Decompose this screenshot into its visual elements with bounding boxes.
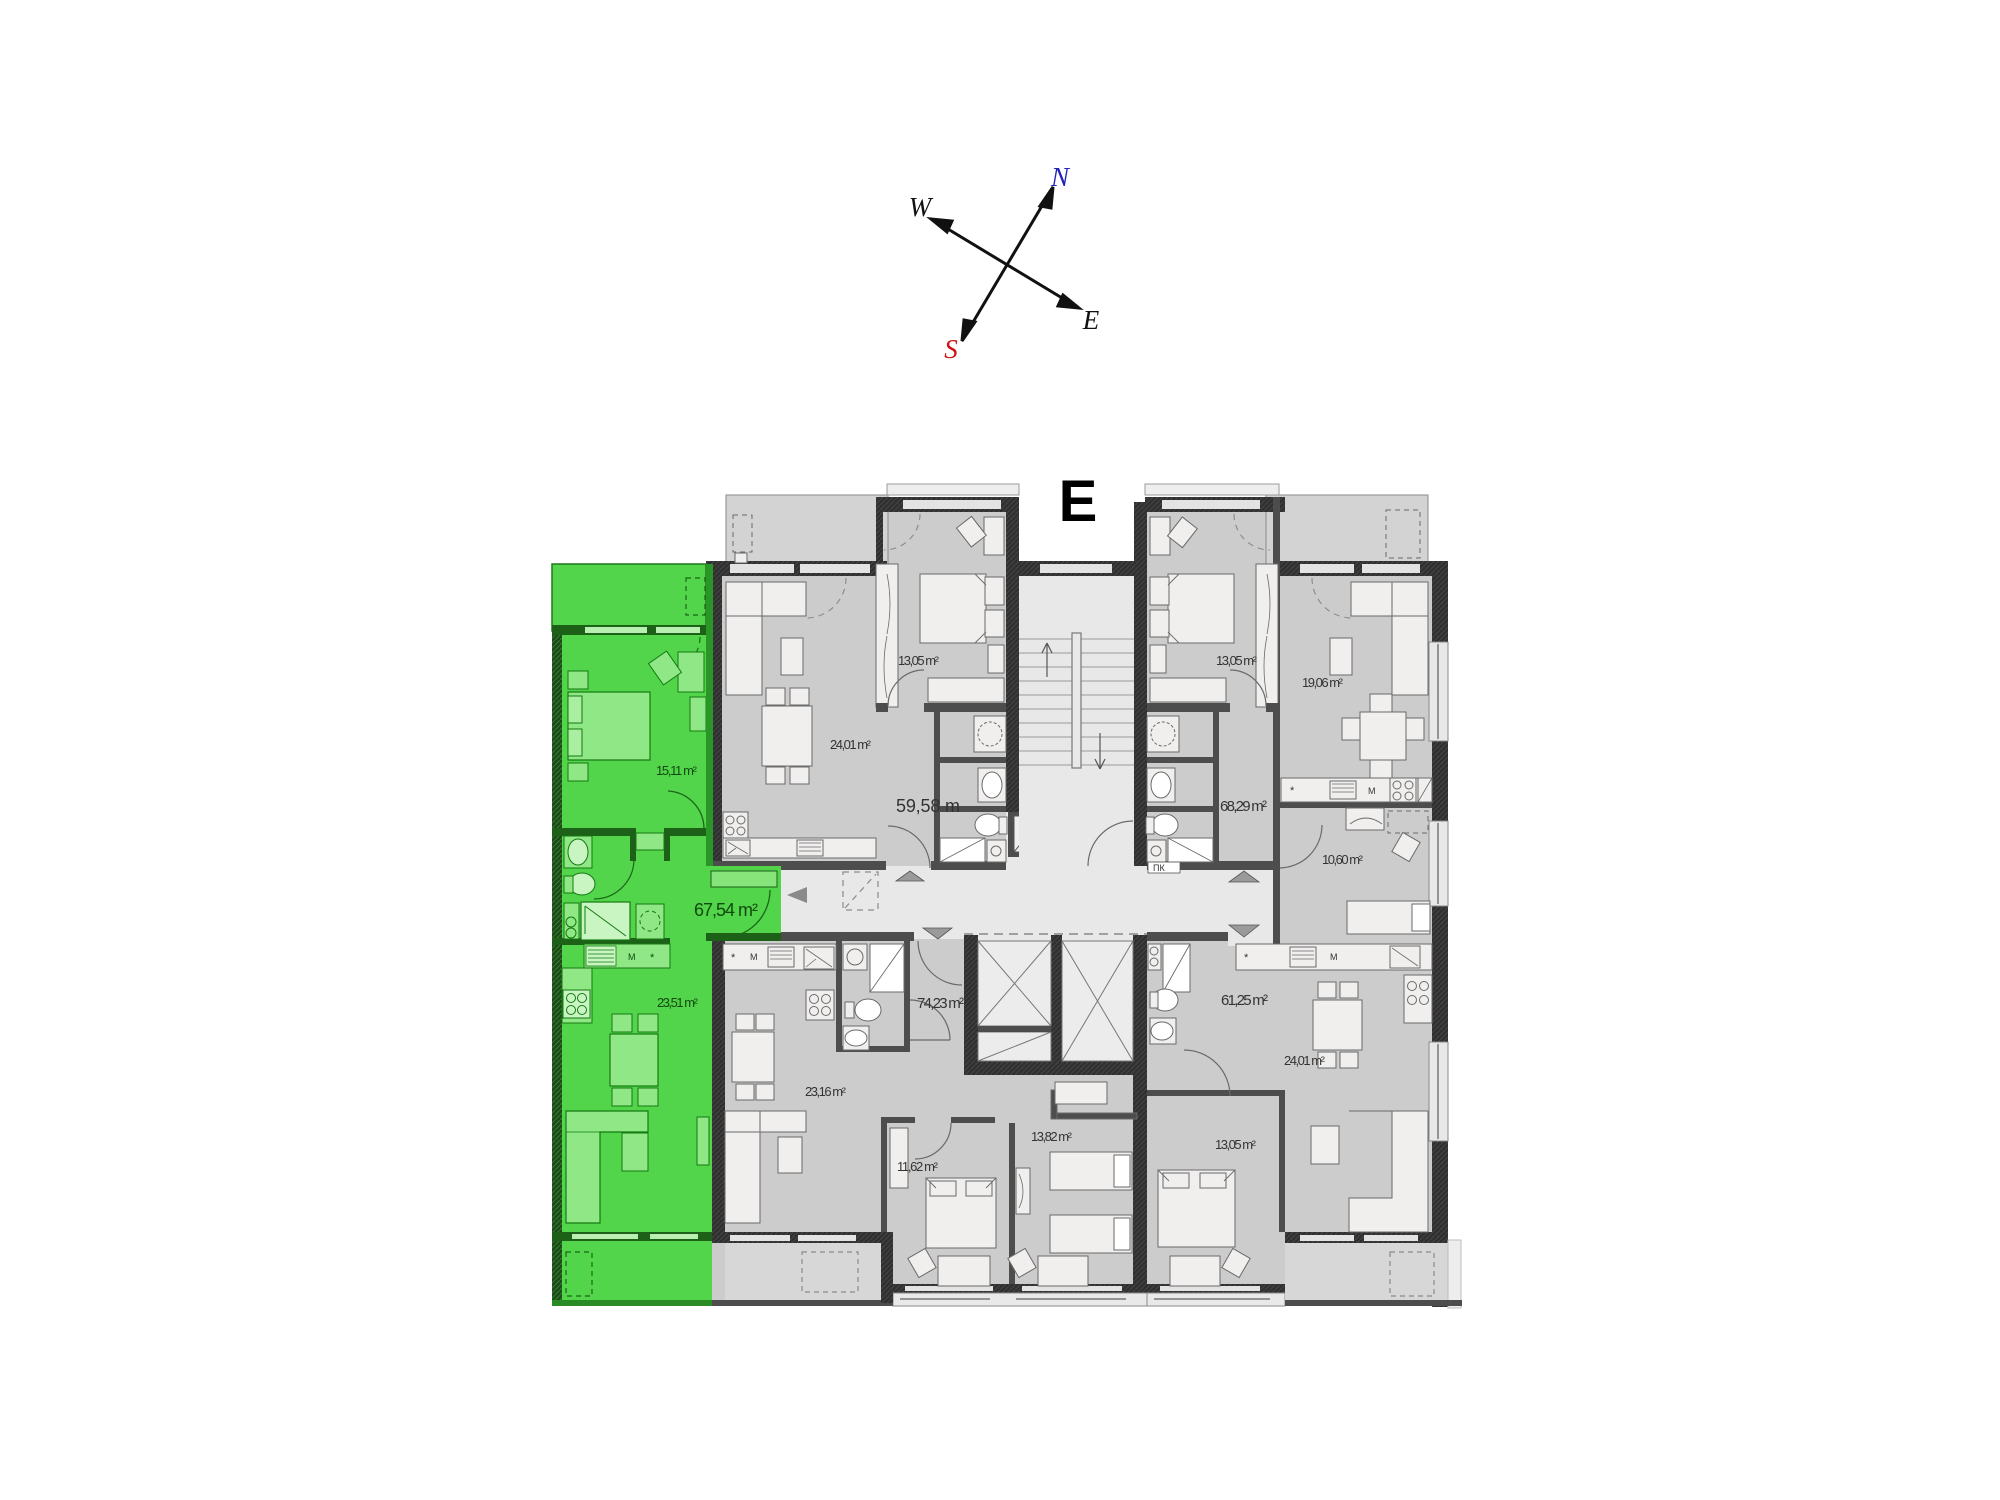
svg-text:*: * bbox=[731, 952, 736, 964]
svg-text:E: E bbox=[1082, 305, 1100, 335]
svg-text:M: M bbox=[750, 952, 758, 962]
svg-text:19,06 m²: 19,06 m² bbox=[1302, 675, 1344, 690]
svg-text:ПК: ПК bbox=[1153, 863, 1165, 873]
svg-text:13,82 m²: 13,82 m² bbox=[1031, 1129, 1073, 1144]
svg-text:W: W bbox=[909, 192, 934, 222]
svg-text:24,01 m²: 24,01 m² bbox=[830, 737, 872, 752]
svg-text:23,51 m²: 23,51 m² bbox=[657, 995, 699, 1010]
svg-text:67,54 m²: 67,54 m² bbox=[694, 900, 758, 920]
svg-text:74,23 m²: 74,23 m² bbox=[917, 995, 964, 1012]
svg-text:*: * bbox=[1244, 952, 1249, 964]
svg-text:15,11 m²: 15,11 m² bbox=[656, 763, 698, 778]
svg-text:M: M bbox=[628, 952, 636, 962]
svg-text:11,62 m²: 11,62 m² bbox=[897, 1159, 939, 1174]
svg-text:13,05 m²: 13,05 m² bbox=[1216, 653, 1258, 668]
svg-text:N: N bbox=[1050, 162, 1071, 192]
svg-text:M: M bbox=[1330, 952, 1338, 962]
svg-text:13,05 m²: 13,05 m² bbox=[1215, 1137, 1257, 1152]
svg-text:10,60 m²: 10,60 m² bbox=[1322, 852, 1364, 867]
svg-text:23,16 m²: 23,16 m² bbox=[805, 1084, 847, 1099]
svg-text:61,25 m²: 61,25 m² bbox=[1221, 992, 1268, 1009]
svg-text:59,58 m: 59,58 m bbox=[896, 796, 960, 816]
svg-text:68,29 m²: 68,29 m² bbox=[1220, 798, 1267, 815]
svg-text:*: * bbox=[650, 952, 655, 964]
svg-text:24,01 m²: 24,01 m² bbox=[1284, 1053, 1326, 1068]
svg-text:E: E bbox=[1059, 469, 1098, 534]
svg-text:S: S bbox=[944, 334, 958, 364]
svg-text:M: M bbox=[1368, 786, 1376, 796]
svg-text:13,05 m²: 13,05 m² bbox=[898, 653, 940, 668]
svg-text:*: * bbox=[1290, 785, 1295, 797]
